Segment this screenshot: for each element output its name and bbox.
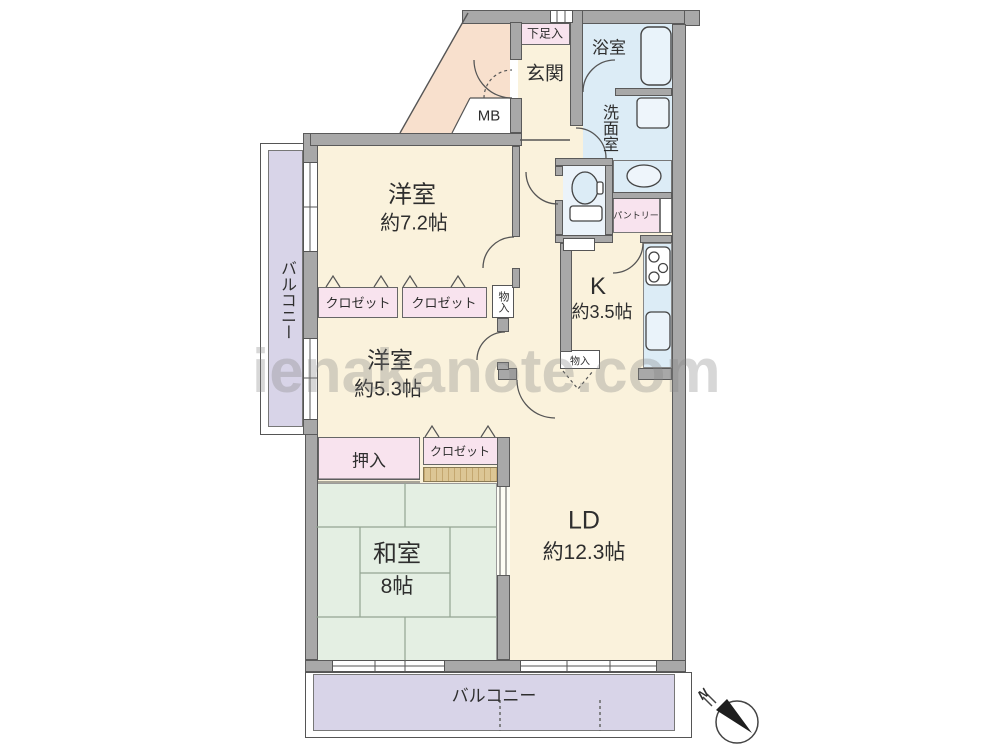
wall-right	[672, 24, 686, 672]
kitchen-size: 約3.5帖	[571, 298, 632, 324]
washroom-door-gap	[570, 126, 583, 160]
western1-size: 約7.2帖	[380, 207, 448, 236]
window-bottom-japanese	[332, 660, 445, 672]
wall-toilet-right	[605, 165, 613, 235]
wall-entrance-right	[570, 10, 583, 126]
wall-toilet-left-a	[555, 166, 563, 176]
wall-niche	[563, 238, 595, 251]
kitchen-name: K	[590, 273, 606, 301]
wall-western2-right-a	[497, 318, 509, 332]
compass-icon	[703, 694, 758, 743]
bottom-balcony-label: バルコニー	[452, 682, 537, 707]
wall-western2-right-b	[497, 362, 509, 370]
wall-top-step	[684, 10, 700, 26]
wall-porch-upper	[510, 22, 522, 60]
pantry-label: パントリー	[613, 209, 658, 222]
sliding-door-opening	[497, 487, 510, 575]
wall-western1-right-b	[512, 268, 520, 288]
window-left-western2	[303, 338, 318, 420]
wall-japanese-ld-b	[497, 575, 510, 660]
wall-porch-lower	[510, 98, 522, 133]
pantry-side-cabinet	[660, 197, 672, 233]
kitchen-counter	[643, 243, 672, 368]
left-balcony-label: バルコニー	[276, 248, 296, 352]
wall-left-lower	[305, 425, 318, 660]
window-bottom-ld	[520, 660, 657, 672]
vanity-counter	[613, 160, 672, 193]
japanese-size: 8帖	[381, 570, 414, 600]
bath-label: 浴室	[592, 34, 626, 59]
wall-toilet-left-b	[555, 200, 563, 235]
compass-north-label: N	[695, 685, 712, 703]
closet-a-label: クロゼット	[325, 293, 390, 312]
wall-japanese-ld-a	[497, 437, 510, 487]
wall-bath-divider	[615, 88, 672, 96]
shoe-cabinet-label: 下足入	[527, 25, 563, 42]
oshiire-label: 押入	[352, 447, 386, 472]
floorplan: 洋室 約7.2帖 洋室 約5.3帖 和室 8帖 LD 約12.3帖 K 約3.5…	[0, 0, 1000, 750]
wall-pantry-bottom	[640, 235, 672, 243]
wall-kitchen-left	[560, 243, 572, 352]
toilet-room-floor	[563, 166, 605, 235]
window-left-western1	[303, 162, 318, 252]
hall-storage-label: 物入	[493, 286, 513, 317]
wall-western1-top	[310, 133, 522, 146]
meter-box-label: MB	[478, 108, 501, 125]
closet-b-label: クロゼット	[411, 293, 476, 312]
wood-strip	[423, 467, 498, 482]
entrance-label: 玄関	[526, 59, 564, 86]
wall-ld-top-b	[638, 368, 672, 380]
washroom-label: 洗面室	[596, 97, 620, 159]
wall-washroom-bottom	[612, 192, 672, 199]
western2-size: 約5.3帖	[354, 373, 422, 402]
wall-western1-right-a	[512, 146, 520, 237]
western1-name: 洋室	[388, 175, 436, 210]
closet-c-label: クロゼット	[430, 443, 490, 460]
ld-name: LD	[568, 507, 600, 536]
kitchen-storage-label: 物入	[570, 353, 590, 368]
western2-name: 洋室	[367, 341, 413, 375]
window-top	[550, 10, 573, 23]
ld-size: 約12.3帖	[543, 536, 626, 566]
japanese-name: 和室	[373, 534, 421, 569]
